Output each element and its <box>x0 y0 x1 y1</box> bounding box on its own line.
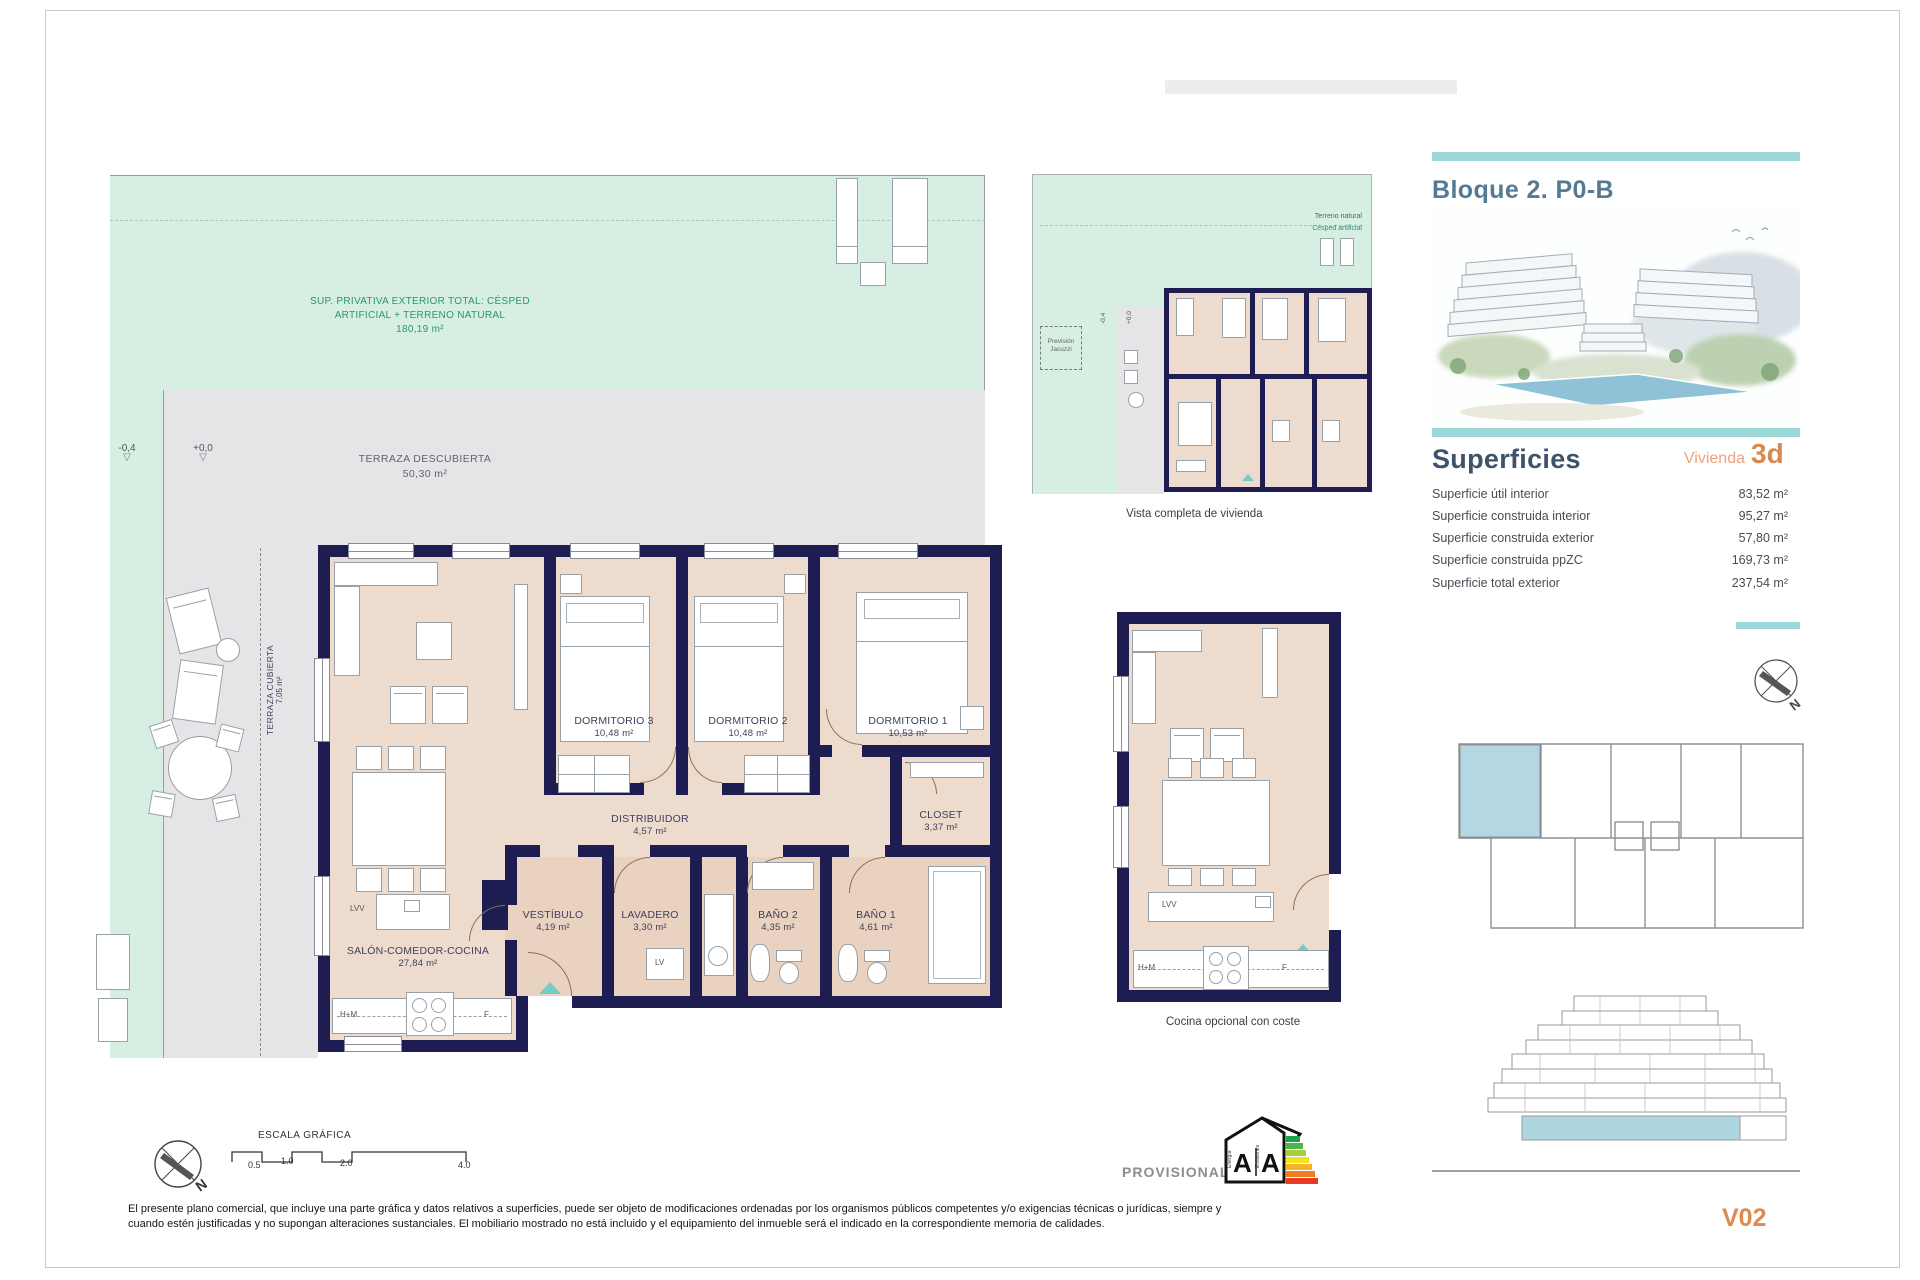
mini-island <box>1176 460 1206 472</box>
surface-row-label: Superficie útil interior <box>1432 487 1549 501</box>
jacuzzi-label: PrevisiónJacuzzi <box>1040 338 1082 355</box>
terraza-descubierta-label: TERRAZA DESCUBIERTA 50,30 m² <box>325 452 525 481</box>
cesped-artificial-label: Césped artificial <box>1250 224 1362 235</box>
burner <box>1227 952 1241 966</box>
dining-chair <box>420 746 446 770</box>
surface-row-value: 237,54 m² <box>1658 576 1788 590</box>
side-table <box>860 262 886 286</box>
nightstand <box>560 574 582 594</box>
elevation-baseline <box>1432 1170 1800 1172</box>
compass-icon: N <box>1750 655 1812 719</box>
terreno-natural-label: Terreno natural <box>1250 212 1362 223</box>
mini-wall <box>1304 292 1309 378</box>
floor-plate-diagram <box>1455 738 1807 950</box>
kitchen-option-caption: Cocina opcional con coste <box>1128 1016 1338 1028</box>
mini-bed <box>1318 298 1346 342</box>
hob <box>1203 946 1249 990</box>
burner <box>412 998 427 1013</box>
mini-sunbed <box>1340 238 1354 266</box>
room-label-bano2: BAÑO 24,35 m² <box>728 908 828 935</box>
armchair <box>432 686 468 724</box>
dining-chair <box>1200 758 1224 778</box>
shelf <box>1262 628 1278 698</box>
building-render <box>1432 206 1800 426</box>
covered-terrace-boundary <box>260 548 261 1056</box>
island-sink <box>1255 896 1271 908</box>
energy-letter: A <box>1233 1148 1252 1178</box>
mini-wall <box>1168 374 1368 379</box>
sink <box>750 944 770 982</box>
energy-rating-icon: A A Energía Emisiones <box>1220 1110 1322 1190</box>
vivienda-code: 3d <box>1751 438 1784 470</box>
dining-chair <box>356 746 382 770</box>
entrance-arrow-icon <box>539 982 561 994</box>
wall <box>578 845 614 857</box>
window <box>570 543 640 559</box>
energy-word: Energía <box>1227 1150 1233 1168</box>
wardrobe <box>558 755 630 793</box>
mini-sunbed <box>1320 238 1334 266</box>
window <box>314 876 330 956</box>
dining-table <box>1162 780 1270 866</box>
terrace-open-area <box>163 390 985 545</box>
lvv-label: LVV <box>1162 900 1177 909</box>
energy-letter: A <box>1261 1148 1280 1178</box>
sofa <box>334 586 360 676</box>
teal-divider <box>1432 152 1800 161</box>
surface-row-value: 57,80 m² <box>1658 531 1788 545</box>
window <box>1113 806 1129 868</box>
mini-chair <box>1124 350 1138 364</box>
mini-bed <box>1262 298 1288 340</box>
room-label-closet: CLOSET3,37 m² <box>891 808 991 835</box>
wall <box>1329 930 1341 1002</box>
wall <box>1117 990 1341 1002</box>
wall <box>318 545 330 1052</box>
mini-chair <box>1124 370 1138 384</box>
toilet-tank <box>776 950 802 962</box>
planter <box>98 998 128 1042</box>
dining-chair <box>1168 758 1192 778</box>
terraza-cubierta-label: TERRAZA CUBIERTA 7,05 m² <box>265 610 295 770</box>
level-marker-minus: -0,4▽ <box>111 443 143 462</box>
vivienda-label: Vivienda <box>1645 450 1745 468</box>
f-label: F <box>1282 963 1287 972</box>
level-marker-plus: +0,0▽ <box>187 443 219 462</box>
mini-entrance-arrow-icon <box>1242 474 1254 481</box>
surface-row-label: Superficie total exterior <box>1432 576 1560 590</box>
version-code: V02 <box>1722 1204 1766 1233</box>
wall <box>1329 624 1341 874</box>
coffee-table <box>416 622 452 660</box>
burner <box>1209 970 1223 984</box>
surface-row-value: 169,73 m² <box>1658 553 1788 567</box>
surface-row-value: 83,52 m² <box>1658 487 1788 501</box>
wall <box>783 845 849 857</box>
toilet-bowl <box>779 962 799 984</box>
terrace-chair <box>212 794 240 822</box>
shower-tray <box>928 866 986 984</box>
wall <box>990 545 1002 1008</box>
planter <box>96 934 130 990</box>
mini-wall <box>1312 379 1317 488</box>
window <box>348 543 414 559</box>
toilet-bowl <box>867 962 887 984</box>
provisional-label: PROVISIONAL <box>1122 1164 1229 1180</box>
room-label-vestibulo: VESTÍBULO4,19 m² <box>503 908 603 935</box>
bed <box>856 592 968 734</box>
dining-chair <box>356 868 382 892</box>
wardrobe <box>744 755 810 793</box>
overview-level-plus: +0,0 <box>1126 294 1136 324</box>
surface-row-label: Superficie construida interior <box>1432 509 1590 523</box>
window <box>344 1036 402 1052</box>
heater-drum <box>708 946 728 966</box>
compass-icon: N <box>150 1136 220 1200</box>
wall <box>544 557 556 795</box>
armchair <box>1210 728 1244 762</box>
overview-caption: Vista completa de vivienda <box>1126 508 1263 520</box>
window <box>452 543 510 559</box>
surface-row-label: Superficie construida exterior <box>1432 531 1594 545</box>
small-table <box>216 638 240 662</box>
lounge-chair <box>172 659 224 725</box>
window <box>314 658 330 742</box>
scale-tick: 0.5 <box>248 1160 261 1170</box>
block-title: Bloque 2. P0-B <box>1432 176 1614 205</box>
nightstand <box>784 574 806 594</box>
wall <box>1117 612 1341 624</box>
lvv-label: LVV <box>350 904 365 913</box>
mini-wall <box>1216 379 1221 488</box>
wall <box>890 757 902 857</box>
scale-tick: 1.0 <box>281 1156 294 1166</box>
mini-sofa <box>1176 298 1194 336</box>
compass-n: N <box>1787 696 1804 714</box>
teal-divider-small <box>1736 622 1800 629</box>
scale-tick: 4.0 <box>458 1160 471 1170</box>
room-label-salon: SALÓN-COMEDOR-COCINA27,84 m² <box>338 944 498 971</box>
overview-level-minus: -0,4 <box>1100 294 1110 324</box>
sunbed-foot <box>836 246 858 264</box>
surface-row-value: 95,27 m² <box>1658 509 1788 523</box>
window <box>704 543 774 559</box>
dining-chair <box>1200 868 1224 886</box>
sunbed-foot <box>892 246 928 264</box>
lv-label: LV <box>655 958 664 967</box>
window <box>838 543 918 559</box>
floor-plan-sheet: SUP. PRIVATIVA EXTERIOR TOTAL: CÉSPED AR… <box>0 0 1920 1280</box>
window <box>1113 676 1129 752</box>
burner <box>412 1017 427 1032</box>
room-label-bano1: BAÑO 14,61 m² <box>826 908 926 935</box>
room-label-lavadero: LAVADERO3,30 m² <box>600 908 700 935</box>
dining-chair <box>1232 868 1256 886</box>
garden-label: SUP. PRIVATIVA EXTERIOR TOTAL: CÉSPED AR… <box>270 295 570 337</box>
tv-unit <box>514 584 528 710</box>
burner <box>431 1017 446 1032</box>
wall <box>505 845 540 857</box>
room-label-dorm2: DORMITORIO 210,48 m² <box>678 714 818 741</box>
burner <box>1227 970 1241 984</box>
wall <box>650 845 747 857</box>
disclaimer-line-2: cuando estén justificadas y no supongan … <box>128 1218 1105 1230</box>
superficies-title: Superficies <box>1432 444 1581 475</box>
room-label-dorm1: DORMITORIO 110,53 m² <box>838 714 978 741</box>
mini-wall <box>1250 292 1255 378</box>
mini-wall <box>1260 379 1265 488</box>
wall <box>572 996 1002 1008</box>
disclaimer-line-1: El presente plano comercial, que incluye… <box>128 1203 1221 1215</box>
mini-bed <box>1222 298 1246 338</box>
toilet-tank <box>864 950 890 962</box>
mini-fixture <box>1322 420 1340 442</box>
sink <box>838 944 858 982</box>
bath-counter <box>752 862 814 890</box>
fridge-label: H+M <box>340 1010 357 1019</box>
compass-n: N <box>192 1176 210 1195</box>
room-label-distribuidor: DISTRIBUIDOR4,57 m² <box>580 812 720 839</box>
building-elevation <box>1480 992 1798 1168</box>
teal-divider <box>1432 428 1800 437</box>
terrace-chair <box>148 790 176 818</box>
sofa <box>334 562 438 586</box>
scan-artifact <box>1165 80 1457 94</box>
room-label-dorm3: DORMITORIO 310,48 m² <box>544 714 684 741</box>
burner <box>431 998 446 1013</box>
surface-row-label: Superficie construida ppZC <box>1432 553 1583 567</box>
fridge-label: H+M <box>1138 963 1155 972</box>
mini-table <box>1128 392 1144 408</box>
dining-table <box>352 772 446 866</box>
washer <box>646 948 684 980</box>
dining-chair <box>388 868 414 892</box>
mini-dining-table <box>1178 402 1212 446</box>
wall <box>885 845 1002 857</box>
f-label: F <box>484 1010 489 1019</box>
wall <box>820 745 832 757</box>
scale-title: ESCALA GRÁFICA <box>258 1130 351 1141</box>
mini-fixture <box>1272 420 1290 442</box>
island-sink <box>404 900 420 912</box>
dining-chair <box>1232 758 1256 778</box>
sofa <box>1132 630 1202 652</box>
armchair <box>390 686 426 724</box>
sofa <box>1132 652 1156 724</box>
wall <box>862 745 1002 757</box>
scale-tick: 2.0 <box>340 1158 353 1168</box>
energy-word: Emisiones <box>1255 1144 1261 1168</box>
dining-chair <box>1168 868 1192 886</box>
burner <box>1209 952 1223 966</box>
wall <box>505 940 517 996</box>
closet-shelf <box>910 762 984 778</box>
dining-chair <box>420 868 446 892</box>
dining-chair <box>388 746 414 770</box>
wall <box>676 557 688 795</box>
armchair <box>1170 728 1204 762</box>
